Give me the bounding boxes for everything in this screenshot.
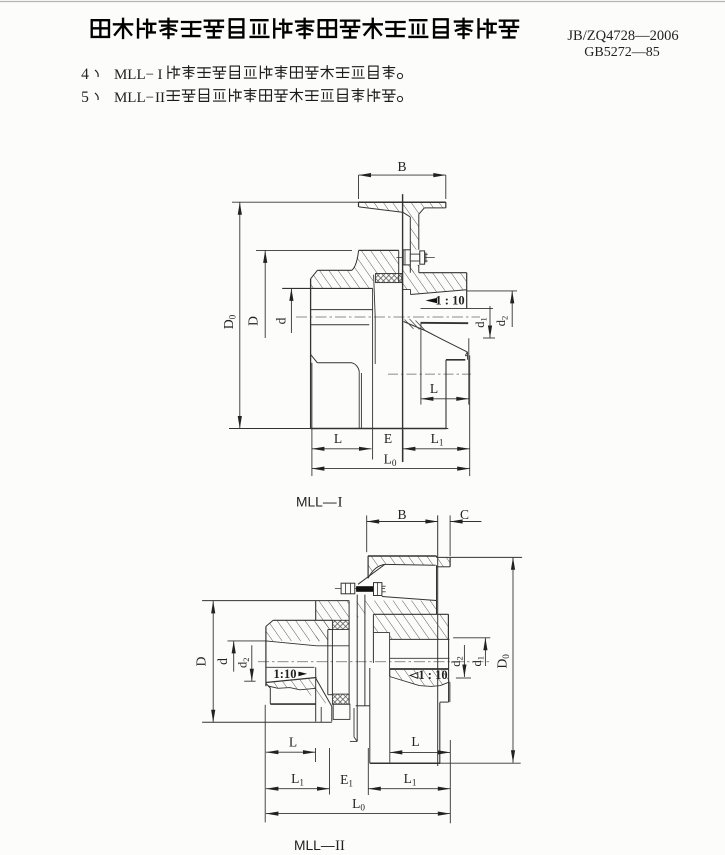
svg-text:d2: d2 — [449, 656, 465, 667]
svg-text:D0: D0 — [495, 654, 512, 669]
svg-text:I: I — [158, 67, 163, 83]
svg-text:d1: d1 — [470, 656, 486, 667]
svg-text:E1: E1 — [340, 772, 353, 789]
svg-text:MLL—: MLL— — [296, 495, 337, 510]
svg-text:L1: L1 — [431, 431, 444, 448]
svg-text:L: L — [334, 431, 342, 446]
svg-text:L0: L0 — [352, 796, 365, 813]
svg-text:L: L — [411, 734, 419, 749]
svg-text:5: 5 — [81, 89, 89, 106]
svg-text:C: C — [460, 507, 469, 522]
svg-text:D: D — [194, 656, 209, 666]
svg-text:MLL−: MLL− — [114, 67, 154, 83]
svg-text:JB/ZQ4728—2006: JB/ZQ4728—2006 — [567, 28, 678, 44]
svg-text:B: B — [397, 159, 406, 174]
svg-text:L1: L1 — [291, 771, 304, 788]
svg-text:II: II — [335, 838, 345, 854]
svg-text:d2: d2 — [494, 316, 510, 327]
svg-text:MLL−: MLL− — [114, 90, 154, 106]
svg-text:L: L — [289, 735, 297, 750]
svg-text:D0: D0 — [221, 314, 238, 329]
svg-text:L: L — [430, 381, 438, 396]
svg-text:GB5272—85: GB5272—85 — [584, 45, 659, 60]
svg-text:D: D — [246, 316, 261, 326]
svg-text:1:10: 1:10 — [274, 667, 297, 681]
svg-text:E: E — [384, 431, 392, 446]
svg-text:d1: d1 — [473, 317, 489, 328]
svg-text:d: d — [215, 658, 230, 665]
svg-text:II: II — [155, 90, 165, 106]
svg-text:MLL—: MLL— — [294, 838, 335, 853]
svg-text:d2: d2 — [235, 658, 251, 669]
svg-text:1 : 10: 1 : 10 — [435, 294, 464, 308]
svg-text:4: 4 — [81, 66, 89, 83]
svg-text:B: B — [397, 507, 406, 522]
svg-text:L0: L0 — [384, 452, 397, 469]
svg-text:L1: L1 — [404, 771, 417, 788]
svg-text:I: I — [338, 495, 343, 511]
svg-text:d: d — [273, 317, 288, 324]
